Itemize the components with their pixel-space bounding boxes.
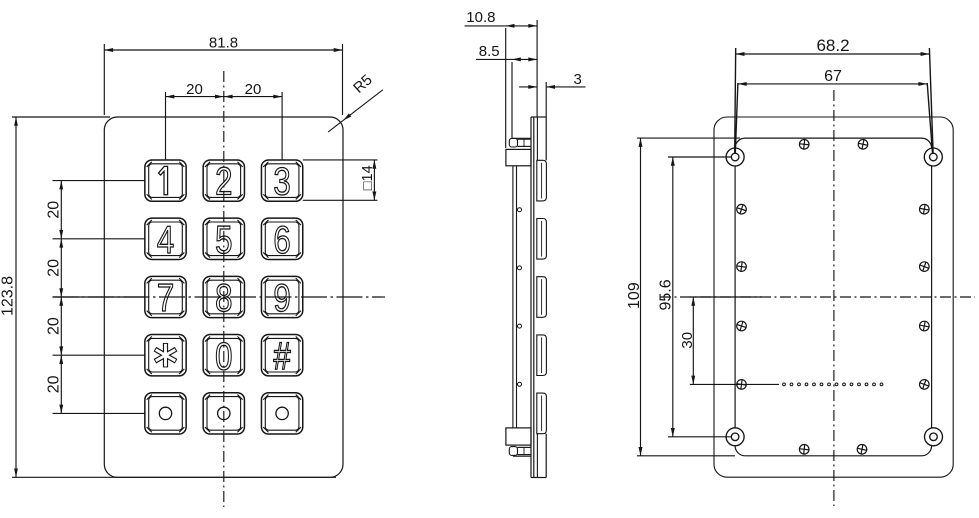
svg-text:4: 4: [157, 219, 174, 262]
svg-text:3: 3: [574, 71, 582, 88]
svg-text:20: 20: [245, 81, 262, 98]
svg-text:10.8: 10.8: [466, 9, 495, 26]
svg-text:20: 20: [46, 201, 63, 219]
svg-text:67: 67: [824, 68, 842, 85]
svg-text:8.5: 8.5: [479, 43, 500, 60]
svg-text:81.8: 81.8: [209, 35, 238, 52]
svg-text:3: 3: [273, 160, 290, 203]
svg-text:□14: □14: [360, 165, 376, 190]
svg-text:#: #: [273, 335, 291, 378]
svg-text:68.2: 68.2: [816, 36, 849, 55]
svg-text:6: 6: [273, 219, 290, 262]
svg-text:7: 7: [157, 277, 174, 320]
svg-text:109: 109: [626, 282, 643, 309]
svg-text:20: 20: [186, 81, 203, 98]
svg-text:20: 20: [46, 375, 63, 393]
svg-text:20: 20: [46, 317, 63, 335]
svg-text:123.8: 123.8: [0, 276, 16, 316]
svg-text:30: 30: [679, 332, 696, 349]
svg-text:9: 9: [273, 277, 290, 320]
svg-text:95.6: 95.6: [658, 279, 675, 310]
svg-text:20: 20: [46, 259, 63, 277]
